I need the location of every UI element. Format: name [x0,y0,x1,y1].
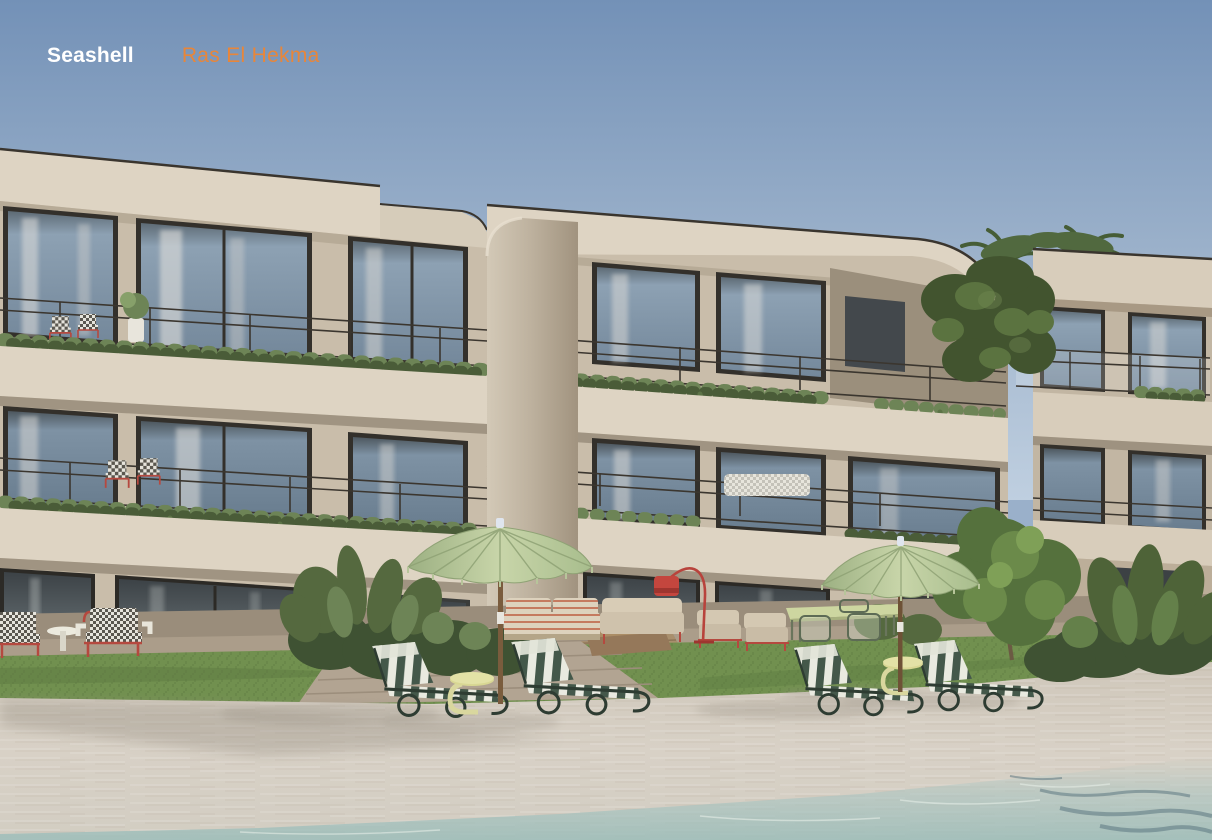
brand-name: Seashell [47,44,134,68]
scene-render [0,0,1212,840]
brand-logo: Seashell Ras El Hekma [47,44,320,68]
brand-location: Ras El Hekma [182,44,320,68]
balcony-plants [1140,392,1208,399]
property-hero-image: Seashell Ras El Hekma [0,0,1212,840]
